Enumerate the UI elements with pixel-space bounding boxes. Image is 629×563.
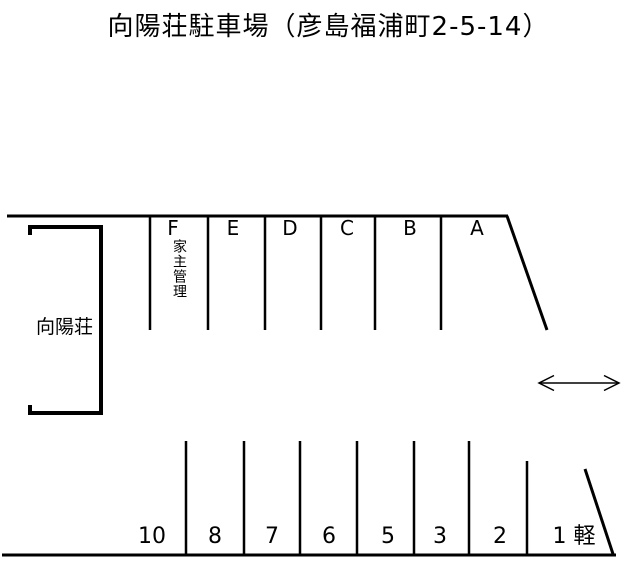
stall-label-6: 6 (322, 526, 336, 548)
upper-right-diagonal-line (507, 216, 547, 330)
stall-label-10: 10 (138, 526, 166, 548)
stall-label-8: 8 (208, 526, 222, 548)
stall-label-b: B (403, 218, 417, 238)
stall-label-d: D (282, 218, 297, 238)
stall-label-e: E (227, 218, 240, 238)
stall-label-f: F (167, 218, 179, 238)
building-label: 向陽荘 (36, 318, 93, 337)
stall-label-1-kei: 1 軽 (553, 526, 596, 548)
double-headed-arrow-icon (539, 376, 619, 391)
stall-label-5: 5 (381, 526, 395, 548)
stall-label-2: 2 (493, 526, 507, 548)
stall-label-3: 3 (433, 526, 447, 548)
stall-label-c: C (340, 218, 354, 238)
parking-lot-diagram: 向陽荘駐車場（彦島福浦町2-5-14） F E D (0, 0, 629, 563)
stall-label-a: A (470, 218, 484, 238)
parking-lot-lines (0, 0, 629, 563)
stall-label-7: 7 (265, 526, 279, 548)
stall-f-note: 家主管理 (171, 239, 186, 299)
